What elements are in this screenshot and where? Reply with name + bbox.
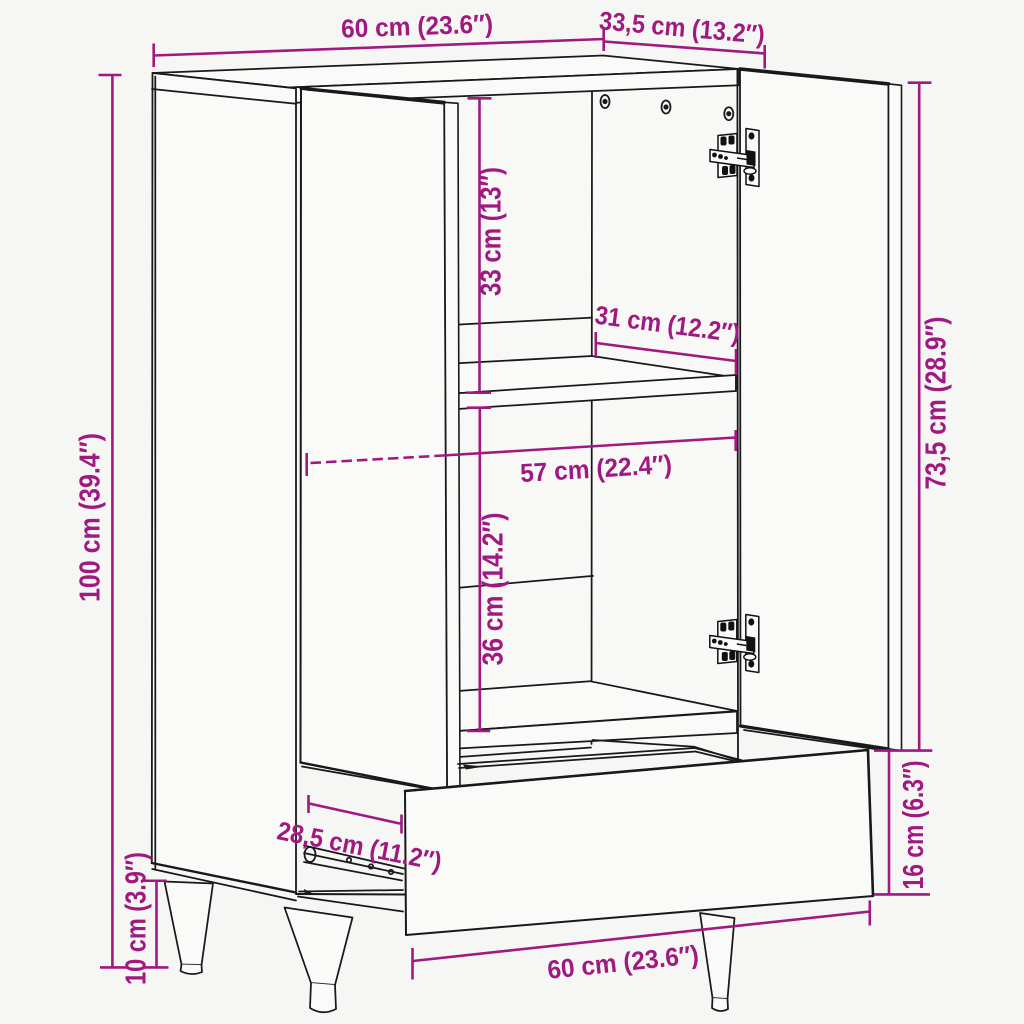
svg-text:36 cm (14.2″): 36 cm (14.2″)	[478, 513, 510, 666]
svg-text:16 cm (6.3″): 16 cm (6.3″)	[898, 761, 930, 890]
svg-text:33 cm (13″): 33 cm (13″)	[476, 167, 508, 296]
svg-text:100 cm (39.4″): 100 cm (39.4″)	[75, 433, 107, 602]
svg-text:10 cm (3.9″): 10 cm (3.9″)	[121, 852, 153, 985]
svg-text:73,5 cm (28.9″): 73,5 cm (28.9″)	[921, 317, 953, 490]
svg-text:60 cm (23.6″): 60 cm (23.6″)	[341, 8, 494, 43]
